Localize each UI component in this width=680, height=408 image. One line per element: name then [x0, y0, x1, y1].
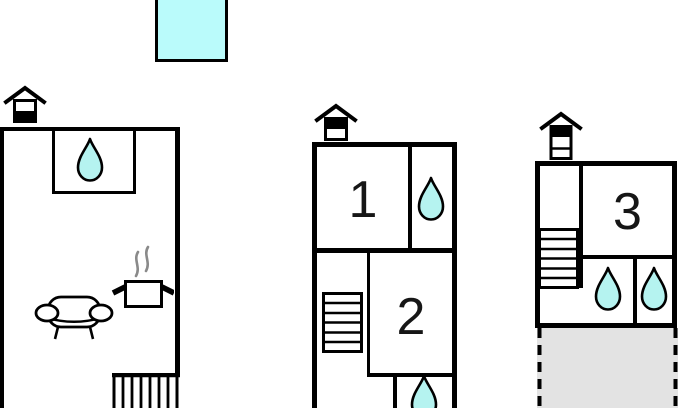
room-2-label: 2 [370, 258, 452, 376]
swimming-pool-icon [155, 0, 228, 62]
sofa-icon [34, 292, 114, 342]
floor-plan-canvas: 1 2 3 [0, 0, 680, 408]
water-drop-icon [417, 176, 445, 222]
cooking-pot-steam-icon [110, 242, 174, 310]
house-upper-floor-icon [314, 103, 358, 143]
unit-2-bottom-bath-divider [393, 377, 397, 408]
terrace-patio [537, 328, 678, 408]
steam-icon [146, 247, 148, 271]
unit-1-staircase-icon [112, 373, 180, 408]
room-1-label: 1 [317, 150, 409, 250]
house-top-floor-icon [539, 111, 583, 161]
water-drop-icon [594, 266, 622, 312]
house-ground-floor-icon [3, 85, 47, 125]
steam-icon [136, 252, 138, 276]
water-drop-icon [76, 137, 104, 183]
unit-3-staircase-icon [538, 228, 579, 289]
unit-3-bath-divider [633, 259, 637, 323]
unit-2-staircase-icon [322, 292, 363, 353]
water-drop-icon [640, 266, 668, 312]
water-drop-icon [410, 374, 438, 408]
room-3-label: 3 [583, 168, 672, 256]
